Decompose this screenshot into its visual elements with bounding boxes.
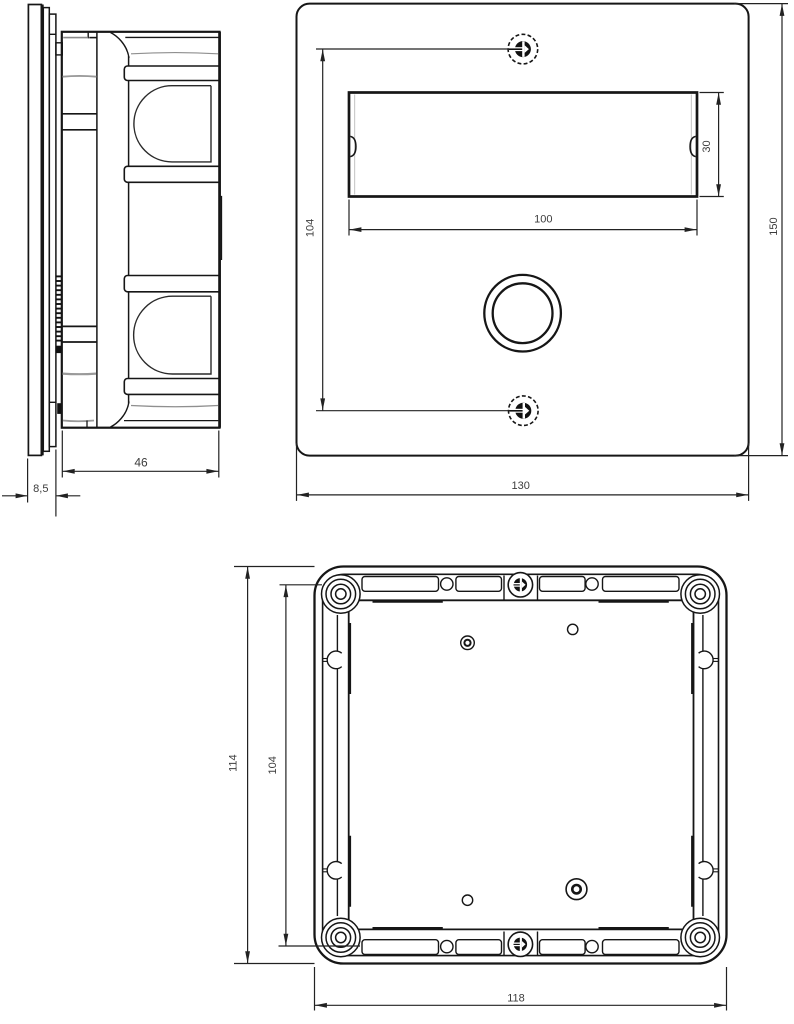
svg-text:8,5: 8,5: [33, 483, 48, 495]
svg-text:130: 130: [512, 480, 530, 492]
svg-text:114: 114: [228, 754, 240, 772]
svg-text:104: 104: [304, 219, 316, 237]
svg-text:46: 46: [134, 456, 148, 470]
svg-text:150: 150: [768, 217, 780, 235]
svg-text:104: 104: [267, 756, 279, 774]
svg-text:100: 100: [534, 214, 552, 226]
svg-text:30: 30: [701, 140, 713, 152]
svg-text:118: 118: [507, 993, 525, 1005]
